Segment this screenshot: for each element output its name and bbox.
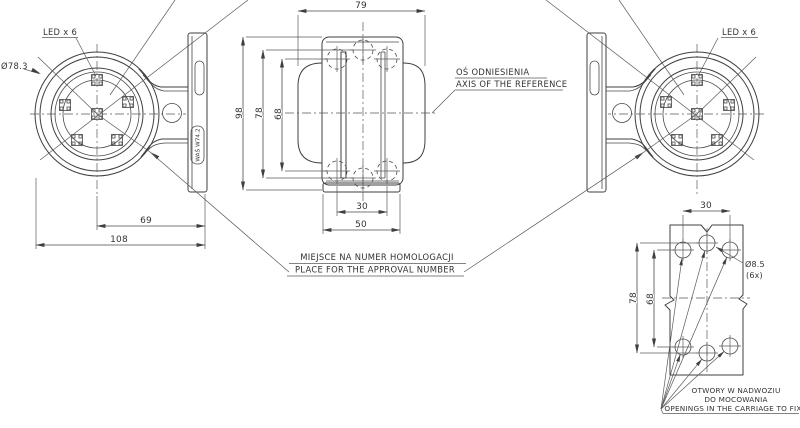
dim-30-side: 30 bbox=[356, 202, 368, 212]
mounting-plate-detail: 30 78 68 Ø8.5 (6x) OTWORY W NADWOZIU bbox=[629, 201, 800, 414]
lamp-technical-drawing: WAŚ W74.2 LED x 6 Ø78.3 69 108 LED x 6 bbox=[0, 0, 800, 428]
approval-callout: MIEJSCE NA NUMER HOMOLOGACJI PLACE FOR T… bbox=[150, 152, 644, 276]
dim-98: 98 bbox=[235, 107, 245, 119]
dim-78-plate: 78 bbox=[629, 292, 639, 304]
mount-label-pl2: DO MOCOWANIA bbox=[704, 395, 767, 404]
hole-size-callout: Ø8.5 (6x) bbox=[716, 247, 765, 280]
lens-diameter-label: Ø78.3 bbox=[1, 61, 28, 71]
led-count-label-left: LED x 6 bbox=[43, 27, 77, 37]
front-view-right: LED x 6 bbox=[546, 0, 764, 196]
axis-callout: OŚ ODNIESIENIA AXIS OF THE REFERENCE bbox=[432, 66, 567, 113]
front-view-dimensions: 69 108 bbox=[36, 178, 205, 249]
side-view-dimensions: 79 98 78 68 30 50 bbox=[235, 1, 425, 234]
side-view: 79 98 78 68 30 50 bbox=[235, 1, 438, 234]
axis-label-en: AXIS OF THE REFERENCE bbox=[456, 79, 567, 89]
dim-78-side: 78 bbox=[255, 107, 265, 119]
dim-69: 69 bbox=[140, 216, 152, 226]
dim-50: 50 bbox=[355, 220, 367, 230]
approval-label-pl: MIEJSCE NA NUMER HOMOLOGACJI bbox=[300, 252, 454, 262]
approval-mark-stamp: WAŚ W74.2 bbox=[191, 126, 204, 164]
dim-108: 108 bbox=[110, 235, 128, 245]
dim-30-plate: 30 bbox=[700, 201, 712, 211]
dim-79: 79 bbox=[355, 1, 367, 11]
led-count-label-right: LED x 6 bbox=[722, 27, 756, 37]
front-view-left: WAŚ W74.2 LED x 6 Ø78.3 69 108 bbox=[1, 0, 248, 249]
dim-68-side: 68 bbox=[274, 108, 284, 120]
mount-label-pl1: OTWORY W NADWOZIU bbox=[692, 386, 781, 395]
hole-count-label: (6x) bbox=[746, 271, 763, 280]
dim-68-plate: 68 bbox=[646, 293, 656, 305]
hole-diameter-label: Ø8.5 bbox=[745, 259, 765, 269]
mount-label-en: OPENINGS IN THE CARRIAGE TO FIX bbox=[664, 404, 800, 413]
approval-label-en: PLACE FOR THE APPROVAL NUMBER bbox=[295, 265, 455, 275]
axis-label-pl: OŚ ODNIESIENIA bbox=[456, 66, 529, 77]
approval-mark-text: WAŚ W74.2 bbox=[195, 128, 202, 161]
technical-drawing-page: WAŚ W74.2 LED x 6 Ø78.3 69 108 LED x 6 bbox=[0, 0, 800, 428]
